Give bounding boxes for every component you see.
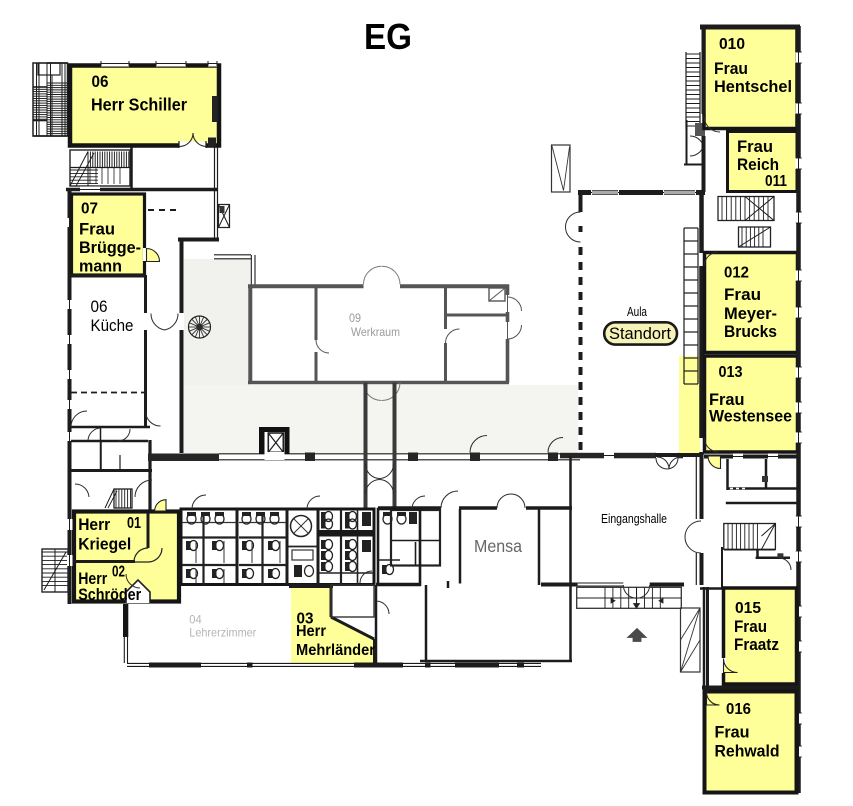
svg-text:Rehwald: Rehwald	[715, 742, 780, 761]
svg-text:016: 016	[726, 701, 751, 718]
svg-text:Herr: Herr	[296, 623, 326, 640]
svg-text:Meyer-: Meyer-	[724, 304, 777, 323]
svg-text:Mensa: Mensa	[474, 536, 522, 556]
svg-text:Eingangshalle: Eingangshalle	[601, 512, 667, 526]
svg-text:Westensee: Westensee	[709, 407, 792, 426]
svg-text:Aula: Aula	[627, 305, 647, 319]
svg-text:Frau: Frau	[724, 285, 761, 304]
svg-text:Küche: Küche	[91, 317, 134, 335]
svg-text:015: 015	[735, 600, 761, 617]
svg-text:Hentschel: Hentschel	[714, 77, 792, 96]
svg-text:06: 06	[92, 72, 109, 91]
svg-text:Reich: Reich	[737, 155, 779, 174]
svg-text:Frau: Frau	[734, 617, 767, 636]
svg-text:011: 011	[765, 173, 787, 190]
svg-text:06: 06	[91, 298, 108, 316]
svg-text:Herr: Herr	[78, 515, 110, 534]
svg-text:Frau: Frau	[79, 220, 115, 239]
svg-text:02: 02	[112, 564, 125, 581]
svg-text:04: 04	[189, 613, 202, 627]
svg-text:mann: mann	[79, 257, 122, 276]
svg-text:Lehrerzimmer: Lehrerzimmer	[189, 626, 256, 640]
svg-text:07: 07	[81, 201, 98, 218]
svg-text:Herr Schiller: Herr Schiller	[91, 95, 187, 115]
svg-text:Fraatz: Fraatz	[734, 635, 779, 654]
svg-text:012: 012	[724, 265, 749, 282]
svg-text:Frau: Frau	[715, 723, 750, 742]
svg-text:Kriegel: Kriegel	[78, 535, 131, 554]
svg-text:Frau: Frau	[714, 59, 748, 78]
svg-text:Schröder: Schröder	[78, 585, 141, 604]
svg-text:Brucks: Brucks	[724, 322, 777, 341]
svg-text:Frau: Frau	[737, 137, 773, 156]
svg-text:01: 01	[127, 515, 141, 532]
svg-text:Mehrländer: Mehrländer	[296, 642, 375, 659]
svg-text:Brügge-: Brügge-	[79, 238, 141, 257]
svg-text:Standort: Standort	[609, 325, 671, 343]
svg-text:013: 013	[719, 364, 743, 381]
svg-text:Werkraum: Werkraum	[351, 325, 400, 339]
svg-text:09: 09	[349, 311, 361, 325]
svg-text:EG: EG	[364, 16, 412, 57]
svg-text:010: 010	[719, 36, 745, 53]
